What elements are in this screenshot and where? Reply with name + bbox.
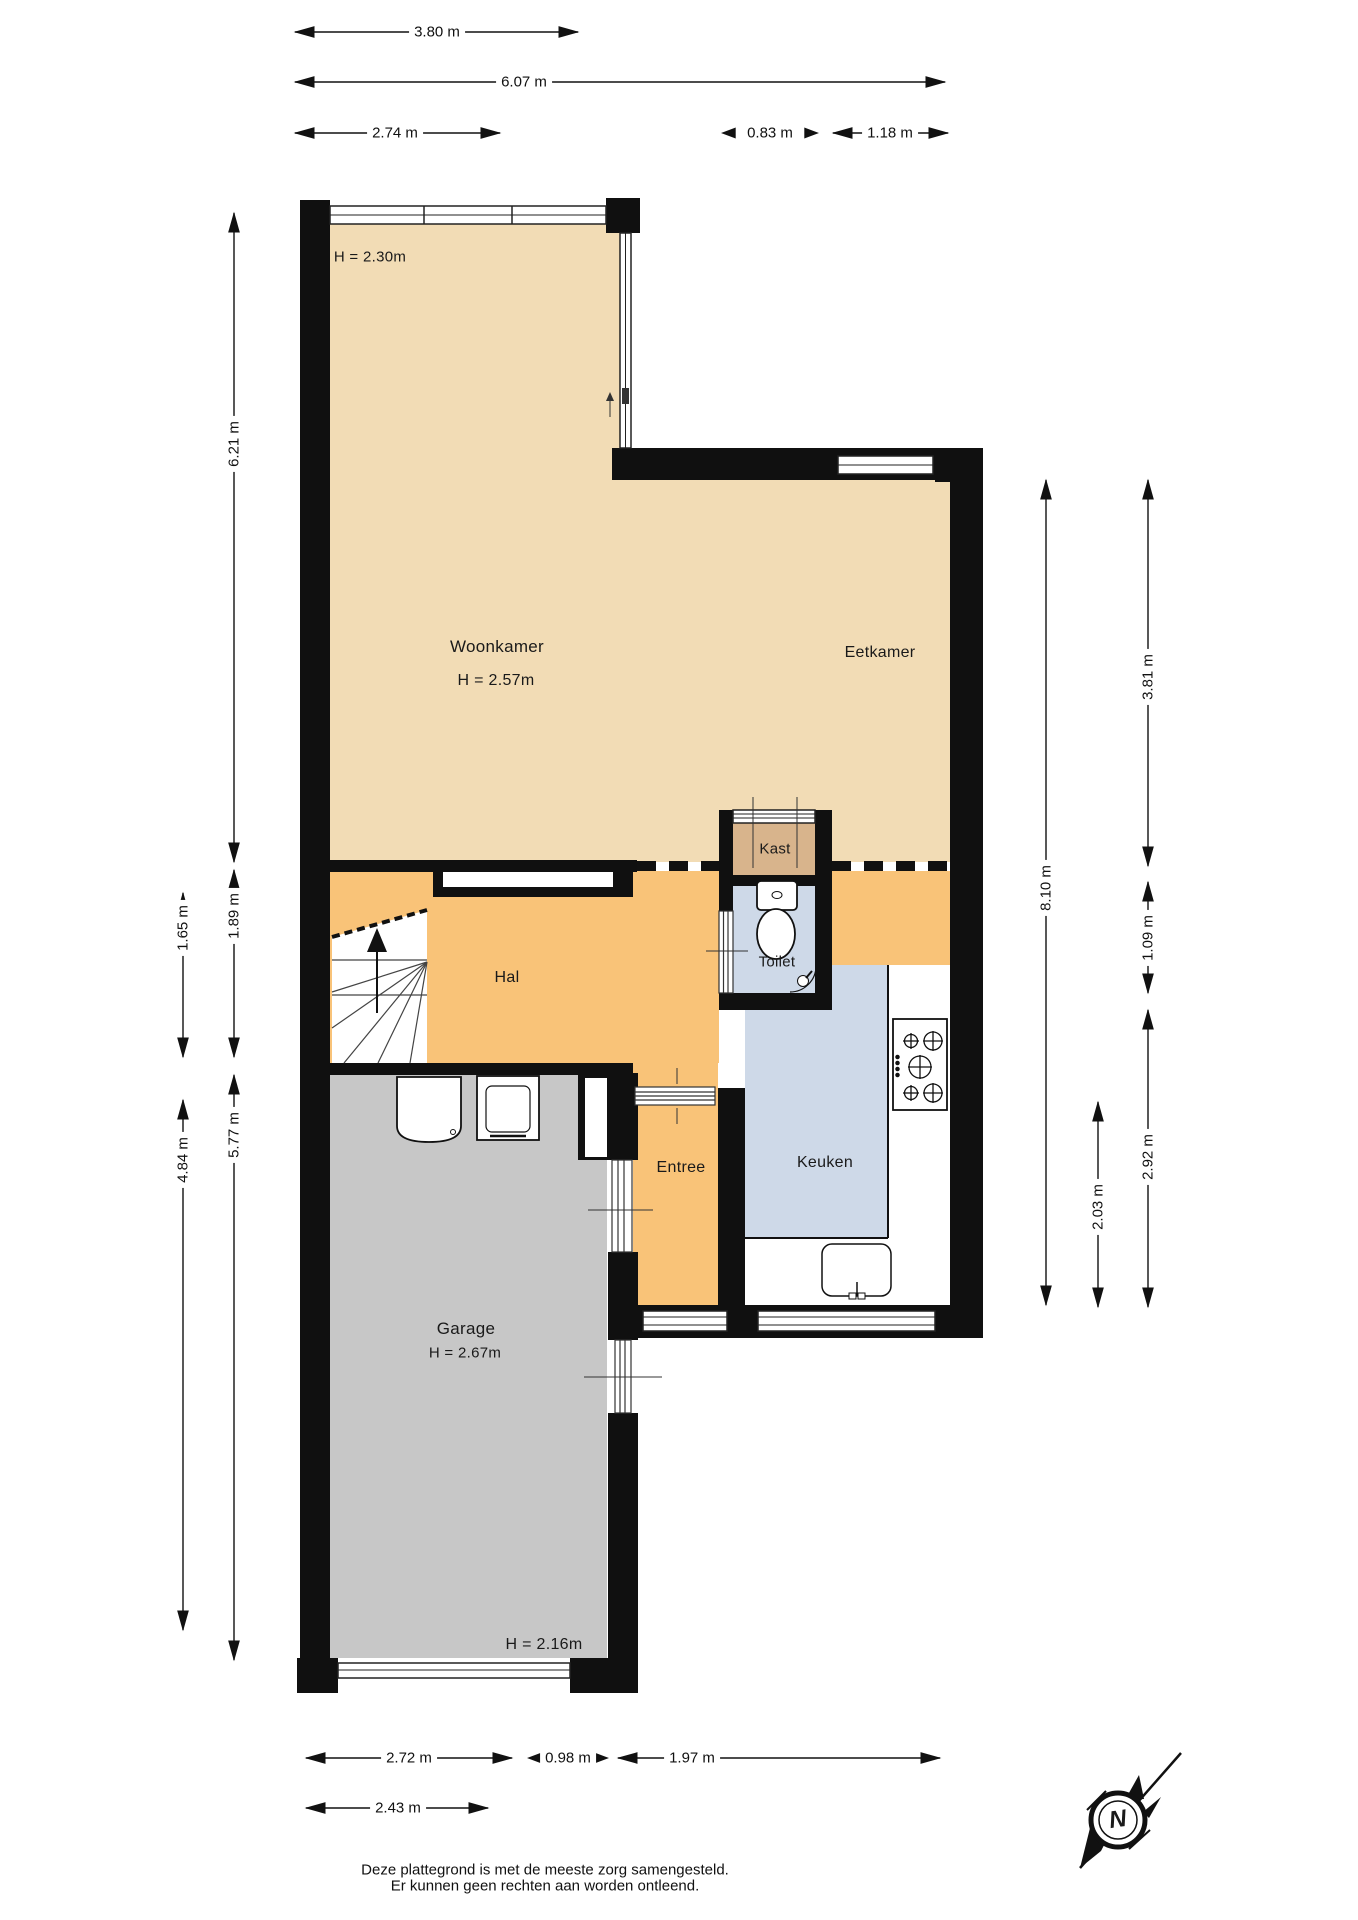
label-garage-rear-height: H = 2.16m xyxy=(506,1636,583,1654)
dim-bottom-1: 2.72 m xyxy=(381,1750,437,1767)
stairs-icon xyxy=(332,910,427,1063)
dim-left-2: 1.89 m xyxy=(226,888,243,944)
dim-right-5: 2.03 m xyxy=(1090,1179,1107,1235)
dim-bottom-4: 2.43 m xyxy=(370,1800,426,1817)
dim-right-3: 1.09 m xyxy=(1140,910,1157,966)
dim-left-3: 1.65 m xyxy=(175,900,192,956)
room-label-garage: Garage xyxy=(437,1319,496,1339)
dim-bottom-3: 1.97 m xyxy=(664,1750,720,1767)
dim-top-3: 2.74 m xyxy=(367,125,423,142)
dim-top-5: 1.18 m xyxy=(862,125,918,142)
sink-icon xyxy=(822,1244,891,1299)
disclaimer-line-2: Er kunnen geen rechten aan worden ontlee… xyxy=(391,1878,700,1895)
floor-plan: H = 2.30m Woonkamer H = 2.57m Eetkamer K… xyxy=(0,0,1358,1920)
disclaimer-line-1: Deze plattegrond is met de meeste zorg s… xyxy=(361,1862,729,1879)
dim-right-4: 2.92 m xyxy=(1140,1129,1157,1185)
dim-top-1: 3.80 m xyxy=(409,24,465,41)
room-label-entree: Entree xyxy=(657,1159,706,1177)
compass-icon xyxy=(1080,1753,1181,1868)
label-garage-height: H = 2.67m xyxy=(429,1345,501,1362)
washer-icon xyxy=(477,1076,539,1140)
room-label-keuken: Keuken xyxy=(797,1154,853,1172)
room-label-eetkamer: Eetkamer xyxy=(845,644,916,662)
dim-top-2: 6.07 m xyxy=(496,74,552,91)
boiler-icon xyxy=(397,1077,461,1142)
compass-north-label: N xyxy=(1107,1805,1128,1835)
label-woonkamer-height: H = 2.57m xyxy=(458,672,535,690)
room-label-toilet: Toilet xyxy=(759,954,796,971)
room-label-kast: Kast xyxy=(759,841,790,858)
dim-left-4: 5.77 m xyxy=(226,1107,243,1163)
label-serre-height: H = 2.30m xyxy=(334,249,406,266)
stove-icon xyxy=(893,1019,947,1110)
dim-left-5: 4.84 m xyxy=(175,1132,192,1188)
dim-left-1: 6.21 m xyxy=(226,416,243,472)
dim-bottom-2: 0.98 m xyxy=(540,1750,596,1767)
dim-top-4: 0.83 m xyxy=(742,125,798,142)
room-label-woonkamer: Woonkamer xyxy=(450,637,544,657)
room-label-hal: Hal xyxy=(495,969,520,987)
dim-right-2: 3.81 m xyxy=(1140,649,1157,705)
dim-right-1: 8.10 m xyxy=(1038,860,1055,916)
